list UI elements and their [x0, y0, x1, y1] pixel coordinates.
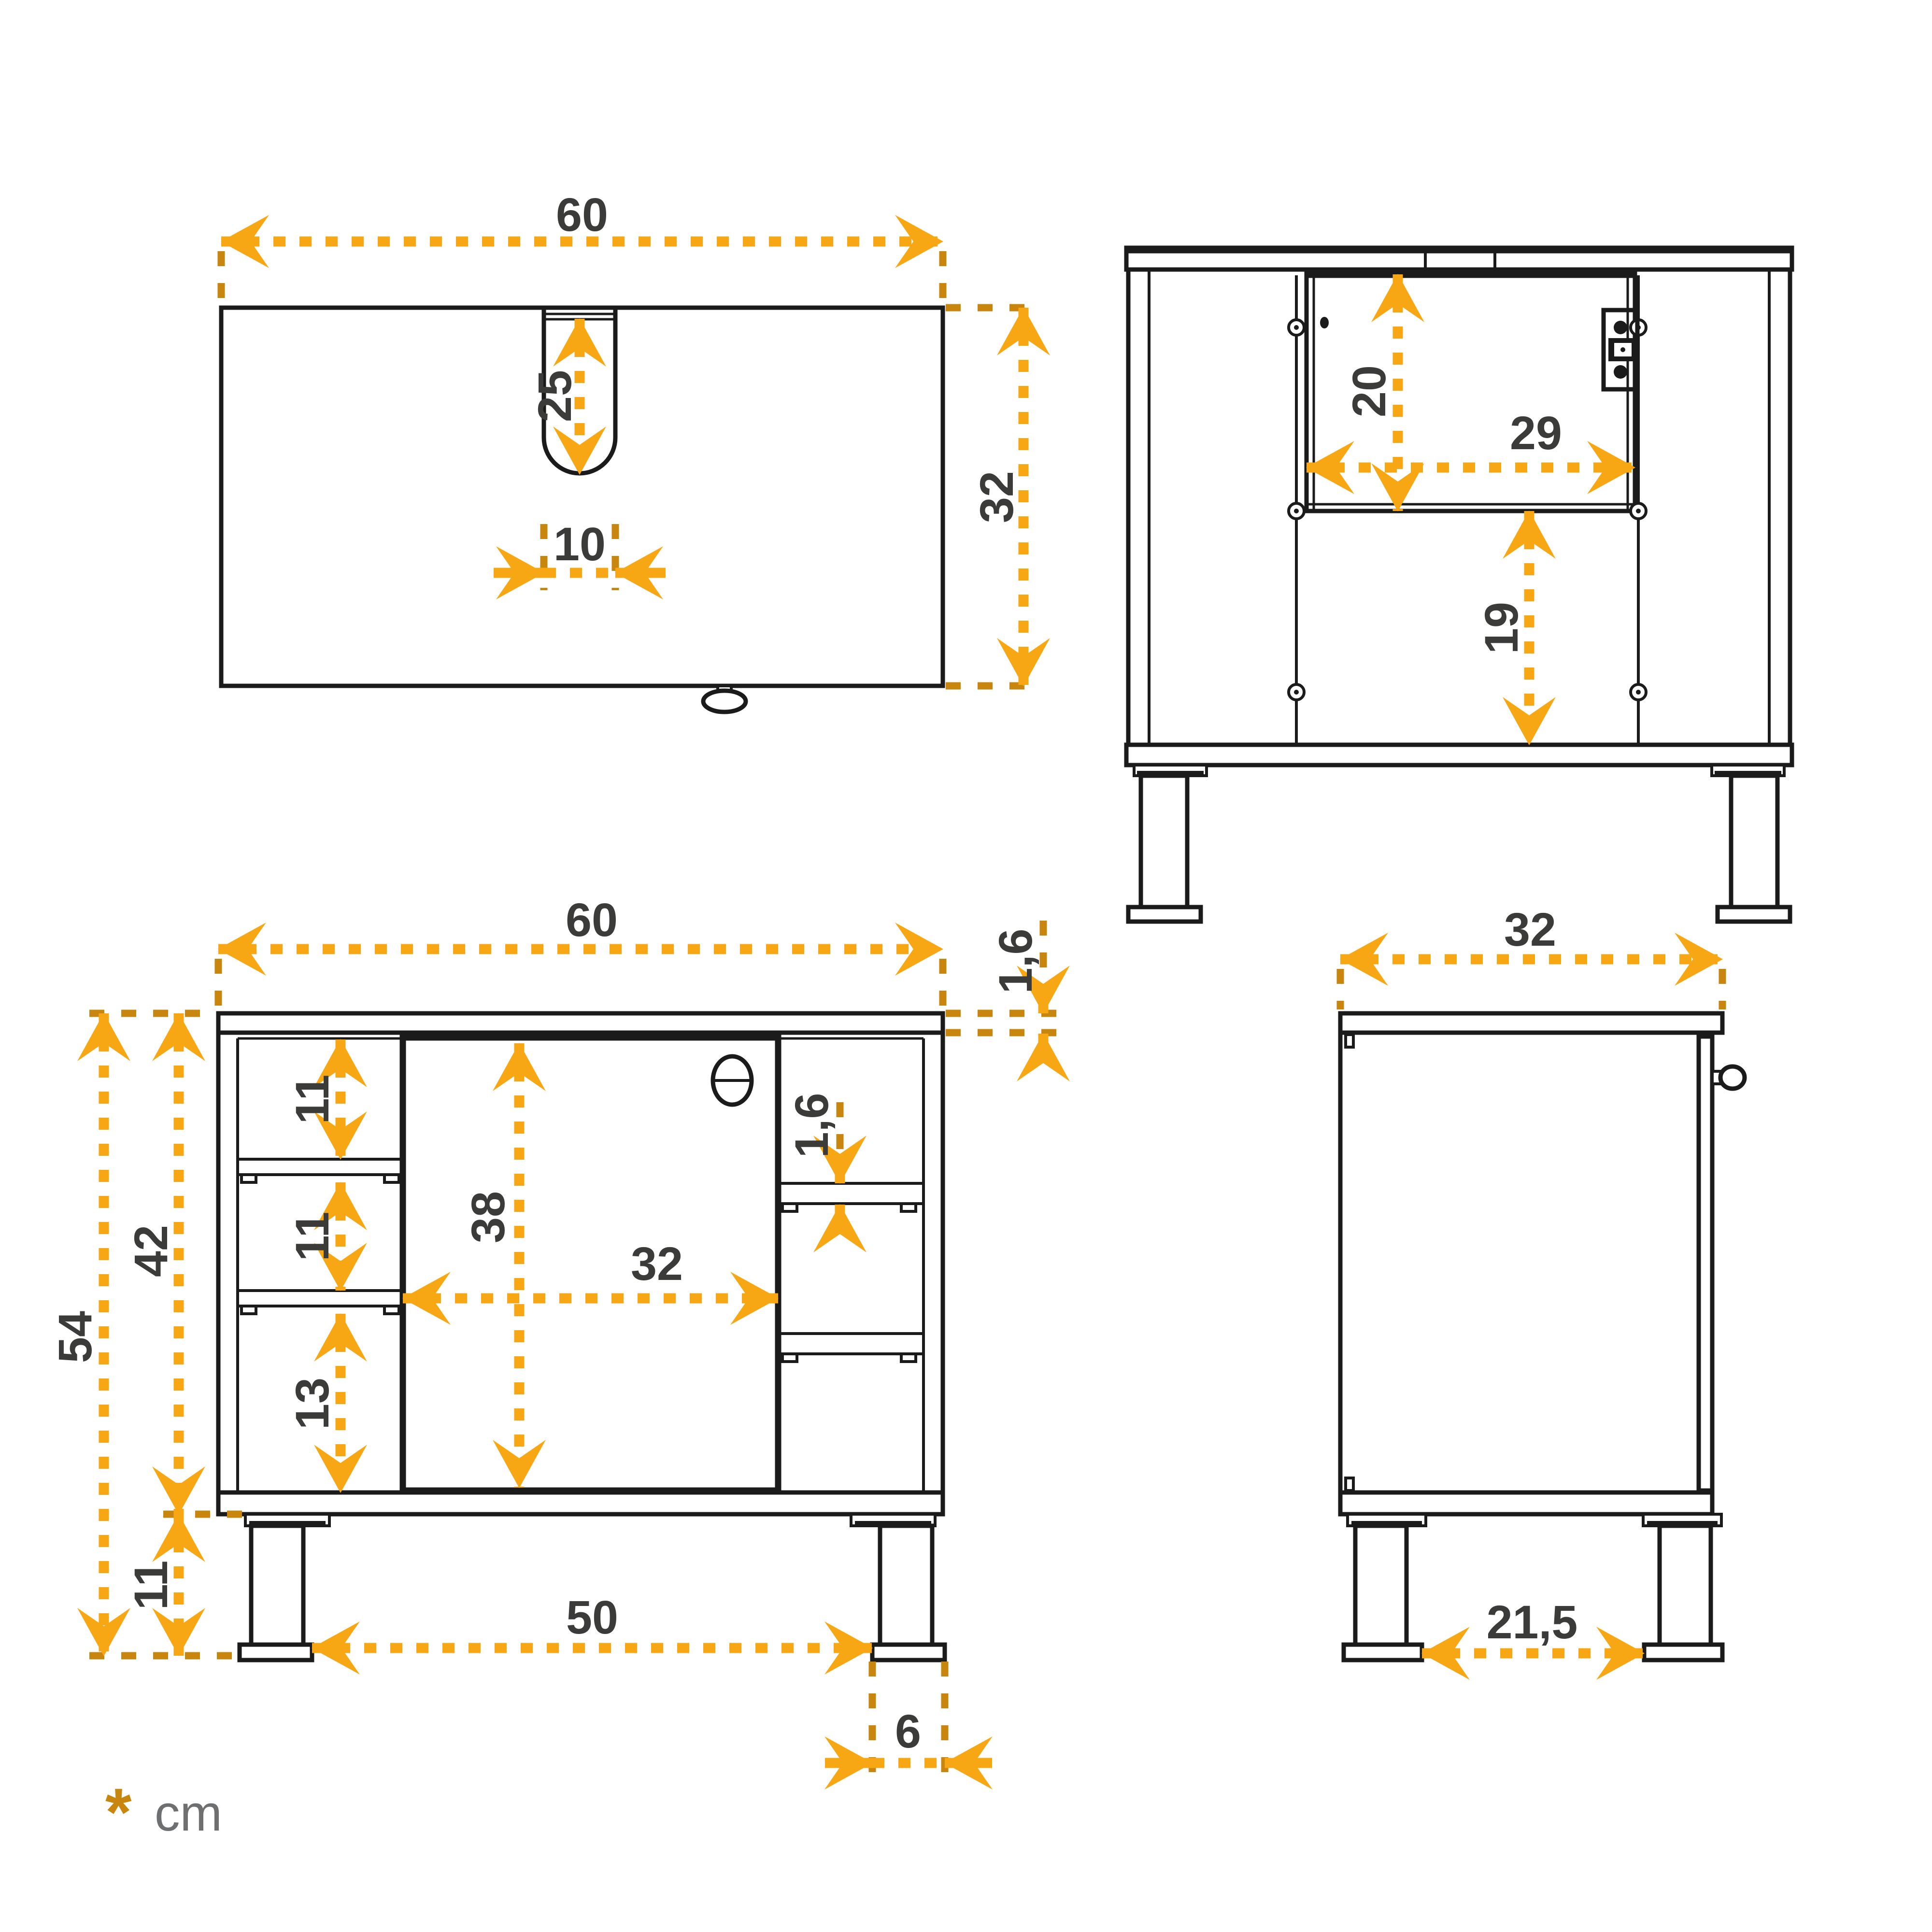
back-bottom-rail: [1126, 745, 1792, 765]
dim-foot-width-label: 6: [895, 1705, 921, 1758]
side-panel-tick: [1346, 1478, 1353, 1491]
front-top-panel: [218, 1013, 943, 1033]
back-cable-hole: [1320, 317, 1329, 328]
side-top-panel: [1340, 1013, 1722, 1033]
side-bottom-rail: [1340, 1492, 1712, 1514]
dim-door-height-label: 38: [462, 1191, 514, 1243]
cabinet-door: [403, 1037, 778, 1491]
dim-slot-width-label: 10: [554, 518, 606, 570]
units-legend: * cm: [105, 1774, 222, 1850]
front-bottom-rail: [218, 1492, 943, 1514]
dim-total-height-label: 54: [49, 1311, 101, 1363]
dim-leg-height-label: 11: [125, 1561, 177, 1610]
dim-compartment-2-label: 11: [286, 1212, 339, 1262]
door-knob-side: [1712, 1066, 1745, 1089]
side-panel-tick: [1346, 1035, 1353, 1047]
dim-side-depth-label: 32: [1504, 903, 1556, 956]
dim-shelf-thickness-label: 1,6: [785, 1093, 838, 1158]
dim-body-height-label: 42: [125, 1225, 177, 1277]
units-label: cm: [155, 1785, 222, 1842]
right-shelves: [778, 1183, 923, 1362]
dim-slot-depth-label: 25: [528, 370, 581, 422]
door-knob-top: [703, 691, 746, 712]
dim-compartment-3-label: 13: [286, 1378, 339, 1430]
dim-opening-height-label: 20: [1343, 365, 1395, 417]
units-asterisk: *: [105, 1774, 132, 1850]
dim-top-thickness-label: 1,6: [989, 929, 1042, 994]
back-view: 20 29 19: [1126, 248, 1792, 922]
side-door-edge: [1699, 1037, 1712, 1491]
dim-door-width-label: 32: [631, 1237, 683, 1290]
dim-top-depth-label: 32: [970, 471, 1023, 523]
top-view-outline: [221, 308, 943, 686]
dim-side-feet-distance-label: 21,5: [1487, 1596, 1578, 1648]
dim-compartment-1-label: 11: [286, 1075, 339, 1124]
dim-top-width-label: 60: [556, 188, 608, 241]
back-legs: [1128, 765, 1790, 922]
dim-front-width-label: 60: [566, 894, 618, 946]
side-view: 32 21,5: [1340, 903, 1745, 1660]
dim-feet-distance-label: 50: [566, 1591, 618, 1644]
front-view: 60 1,6 54 42 11 11 11 13 38 32 1,6: [49, 894, 1068, 1774]
furniture-dimension-drawing: 60 32 25 10: [0, 0, 1932, 1932]
dim-lower-height-label: 19: [1475, 602, 1528, 654]
dim-opening-width-label: 29: [1510, 407, 1562, 459]
top-view: 60 32 25 10: [221, 188, 1038, 712]
drawing-canvas: 60 32 25 10: [0, 0, 1932, 1932]
door-knob-front: [713, 1056, 752, 1105]
